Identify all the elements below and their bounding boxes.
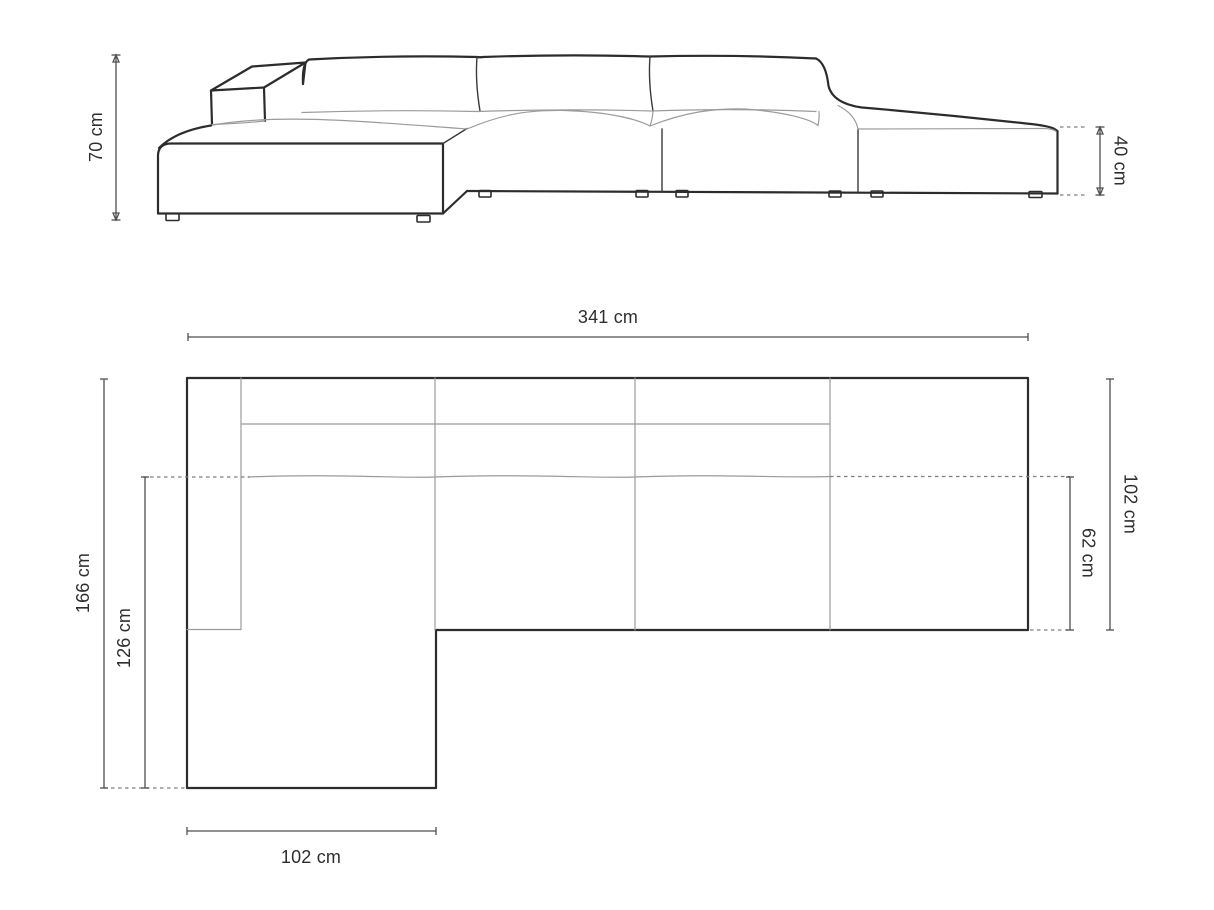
dimension-chaise-width: 102 cm (187, 827, 436, 867)
dimension-seat-height: 40 cm (1060, 127, 1130, 195)
total-height-label: 70 cm (86, 112, 106, 162)
chaise-width-label: 102 cm (281, 847, 341, 867)
diagram-svg: 70 cm 40 cm (0, 0, 1214, 910)
armrest-box (211, 63, 306, 125)
sofa-base-front (467, 129, 1058, 194)
total-depth-label: 166 cm (73, 553, 93, 613)
chaise-length-label: 126 cm (114, 608, 134, 668)
dimension-body-depth: 102 cm (1106, 379, 1140, 630)
dimension-total-depth: 166 cm (73, 379, 108, 788)
chaise-module-front (158, 126, 467, 214)
dimension-total-width: 341 cm (188, 307, 1028, 341)
seat-height-label: 40 cm (1110, 136, 1130, 186)
seat-cushions-front (213, 106, 1056, 132)
sofa-dimension-diagram: 70 cm 40 cm (0, 0, 1214, 910)
dimension-chaise-length: 126 cm (114, 477, 149, 788)
plan-outline (187, 378, 1028, 788)
body-depth-label: 102 cm (1120, 474, 1140, 534)
dimension-seat-depth: 62 cm (1066, 477, 1098, 630)
top-plan-view: 341 cm 166 cm 126 cm 102 cm (73, 307, 1141, 867)
total-width-label: 341 cm (578, 307, 638, 327)
dimension-total-height: 70 cm (86, 55, 121, 220)
seat-depth-label: 62 cm (1078, 528, 1098, 578)
front-elevation-view: 70 cm 40 cm (86, 55, 1131, 222)
